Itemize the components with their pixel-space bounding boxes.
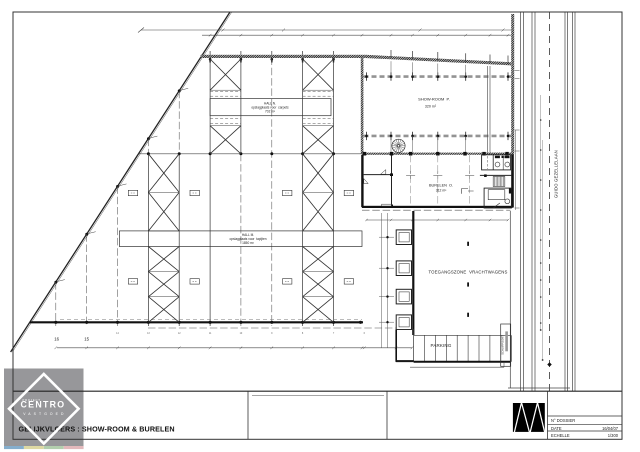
svg-text:N° DOSSIER: N° DOSSIER	[551, 418, 575, 423]
svg-text:SCHUIFPOORT: SCHUIFPOORT	[500, 335, 504, 355]
svg-text:1/300: 1/300	[608, 433, 619, 438]
svg-text:1850 m²: 1850 m²	[242, 241, 254, 245]
svg-text:VASTGOED: VASTGOED	[23, 412, 66, 416]
svg-text:TOEGANGSZONE VRACHTWAGENS: TOEGANGSZONE VRACHTWAGENS	[428, 269, 507, 274]
svg-text:16: 16	[54, 337, 59, 342]
svg-text:DATE: DATE	[551, 426, 562, 431]
svg-text:CENTRO: CENTRO	[21, 400, 66, 410]
svg-text:SHOW-ROOM P.: SHOW-ROOM P.	[418, 96, 450, 101]
svg-text:702 m²: 702 m²	[265, 109, 275, 113]
svg-text:320 m²: 320 m²	[425, 104, 437, 108]
svg-text:312 m²: 312 m²	[436, 189, 447, 193]
svg-text:GELIJKVLOERS : SHOW-ROOM & BUR: GELIJKVLOERS : SHOW-ROOM & BURELEN	[19, 425, 175, 434]
svg-text:15: 15	[84, 337, 89, 342]
svg-text:ECHELLE: ECHELLE	[551, 433, 570, 438]
svg-text:GUIDO GEZELLELAAN: GUIDO GEZELLELAAN	[553, 150, 558, 198]
svg-text:16/04/07: 16/04/07	[602, 426, 619, 431]
svg-text:PARKING: PARKING	[431, 343, 452, 348]
svg-text:BURELEN O.: BURELEN O.	[429, 184, 453, 188]
